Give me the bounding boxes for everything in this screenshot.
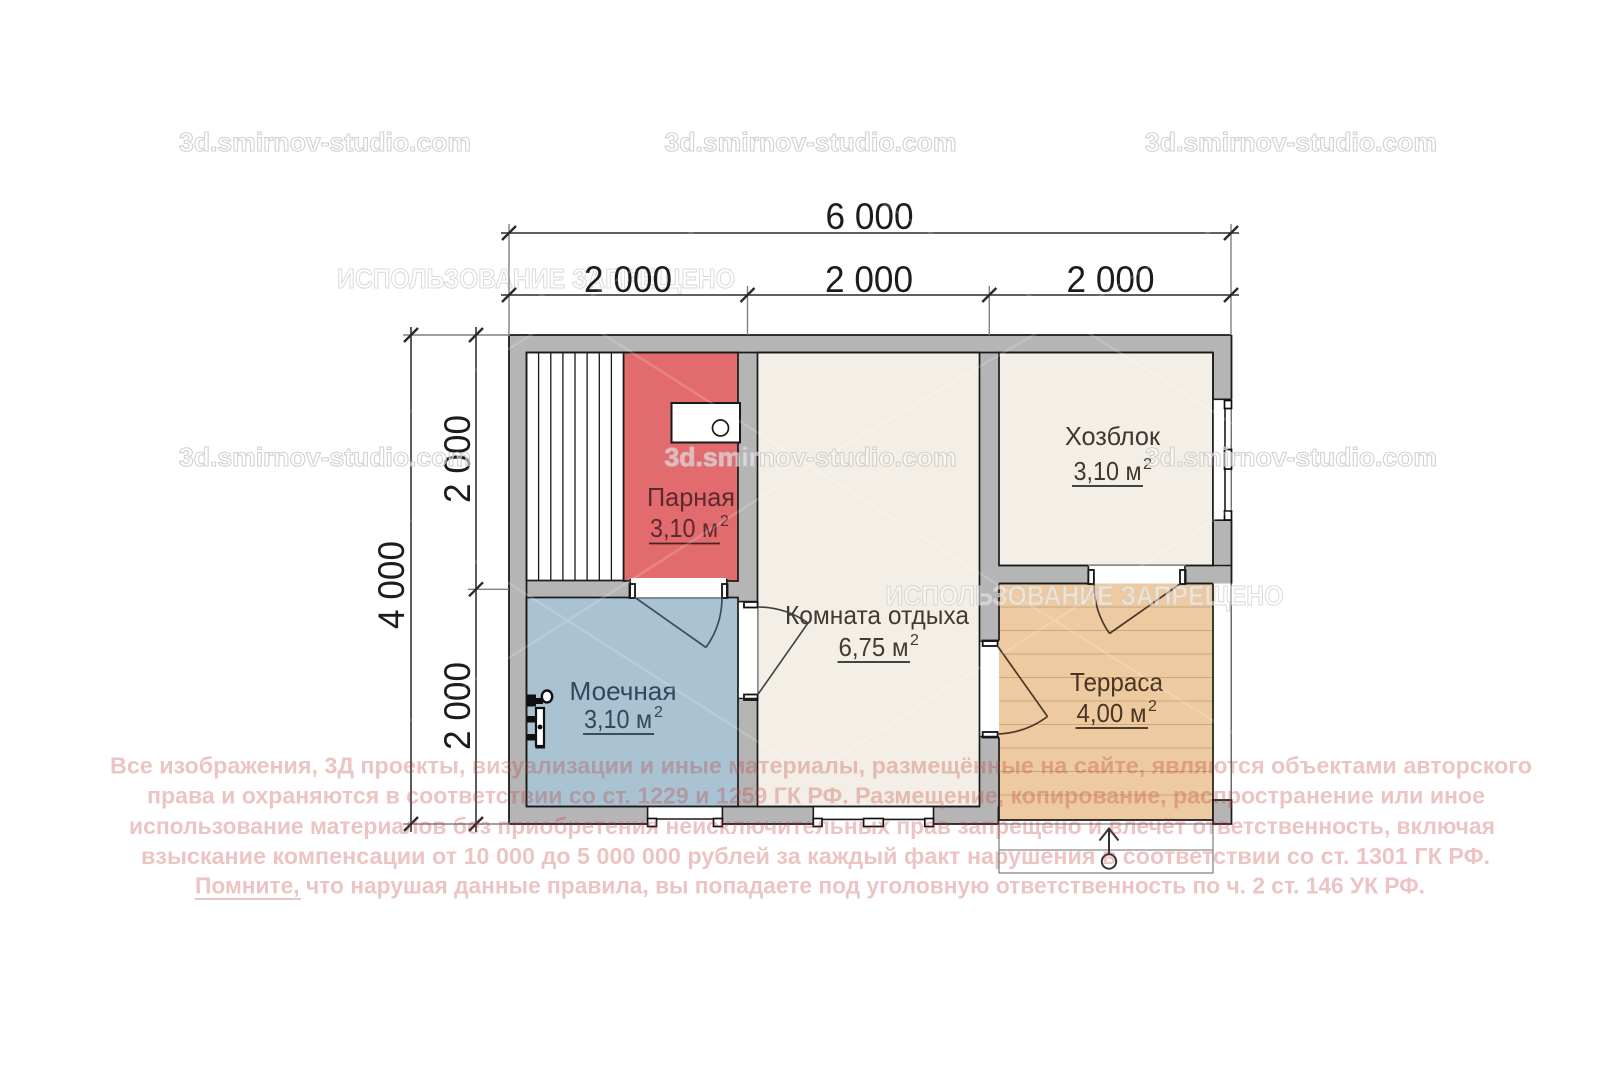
svg-text:6,75 м: 6,75 м (839, 632, 909, 662)
svg-text:права и охраняются в соответст: права и охраняются в соответствии со ст.… (147, 783, 1485, 809)
svg-text:3d.smirnov-studio.com: 3d.smirnov-studio.com (1145, 127, 1437, 157)
svg-text:2 000: 2 000 (437, 662, 478, 750)
svg-text:Парная: Парная (647, 482, 735, 512)
svg-text:ИСПОЛЬЗОВАНИЕ ЗАПРЕЩЕНО: ИСПОЛЬЗОВАНИЕ ЗАПРЕЩЕНО (337, 263, 735, 294)
svg-text:ИСПОЛЬЗОВАНИЕ ЗАПРЕЩЕНО: ИСПОЛЬЗОВАНИЕ ЗАПРЕЩЕНО (886, 580, 1284, 611)
svg-text:2 000: 2 000 (1067, 259, 1155, 300)
svg-text:Все изображения, 3Д проекты, в: Все изображения, 3Д проекты, визуализаци… (110, 753, 1532, 779)
svg-text:Терраса: Терраса (1070, 667, 1163, 697)
svg-text:4,00 м: 4,00 м (1077, 698, 1147, 728)
svg-text:3,10 м: 3,10 м (1074, 456, 1142, 486)
svg-text:4 000: 4 000 (371, 541, 412, 629)
svg-text:2: 2 (654, 704, 663, 721)
svg-text:3,10 м: 3,10 м (584, 704, 652, 734)
svg-text:2: 2 (1148, 698, 1157, 715)
svg-text:3,10 м: 3,10 м (650, 513, 718, 543)
svg-text:2: 2 (910, 632, 919, 649)
svg-text:использование материалов без п: использование материалов без приобретени… (129, 813, 1495, 839)
svg-text:3d.smirnov-studio.com: 3d.smirnov-studio.com (1145, 442, 1437, 472)
svg-text:3d.smirnov-studio.com: 3d.smirnov-studio.com (665, 127, 957, 157)
svg-text:взыскание компенсации от 10 00: взыскание компенсации от 10 000 до 5 000… (141, 843, 1490, 869)
svg-text:3d.smirnov-studio.com: 3d.smirnov-studio.com (179, 127, 471, 157)
svg-text:Помните, что нарушая данные пр: Помните, что нарушая данные правила, вы … (195, 873, 1425, 899)
svg-text:3d.smirnov-studio.com: 3d.smirnov-studio.com (665, 442, 957, 472)
svg-text:6 000: 6 000 (826, 196, 914, 237)
svg-text:2 000: 2 000 (825, 259, 913, 300)
svg-text:3d.smirnov-studio.com: 3d.smirnov-studio.com (179, 442, 471, 472)
